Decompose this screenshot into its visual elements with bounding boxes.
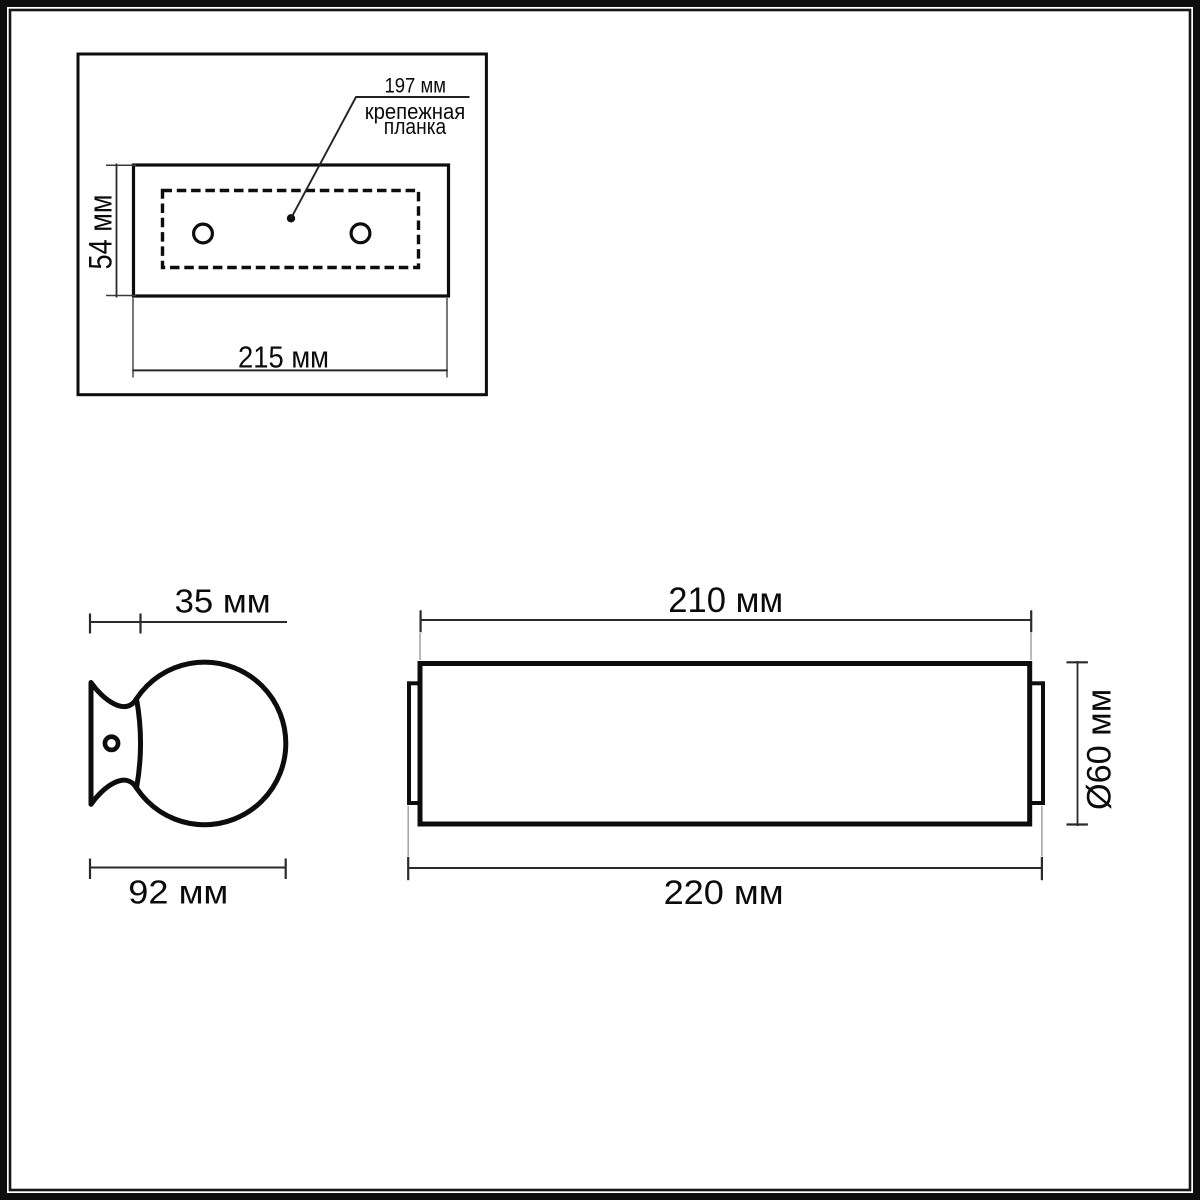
svg-text:197 мм: 197 мм	[384, 74, 446, 98]
svg-text:210 мм: 210 мм	[668, 581, 783, 620]
svg-text:54 мм: 54 мм	[83, 195, 119, 270]
svg-text:Ø60 мм: Ø60 мм	[1081, 689, 1119, 810]
svg-text:92 мм: 92 мм	[128, 874, 228, 911]
svg-text:35 мм: 35 мм	[175, 584, 271, 621]
svg-text:220 мм: 220 мм	[664, 874, 784, 912]
svg-text:планка: планка	[384, 114, 447, 139]
svg-text:215 мм: 215 мм	[238, 339, 329, 374]
